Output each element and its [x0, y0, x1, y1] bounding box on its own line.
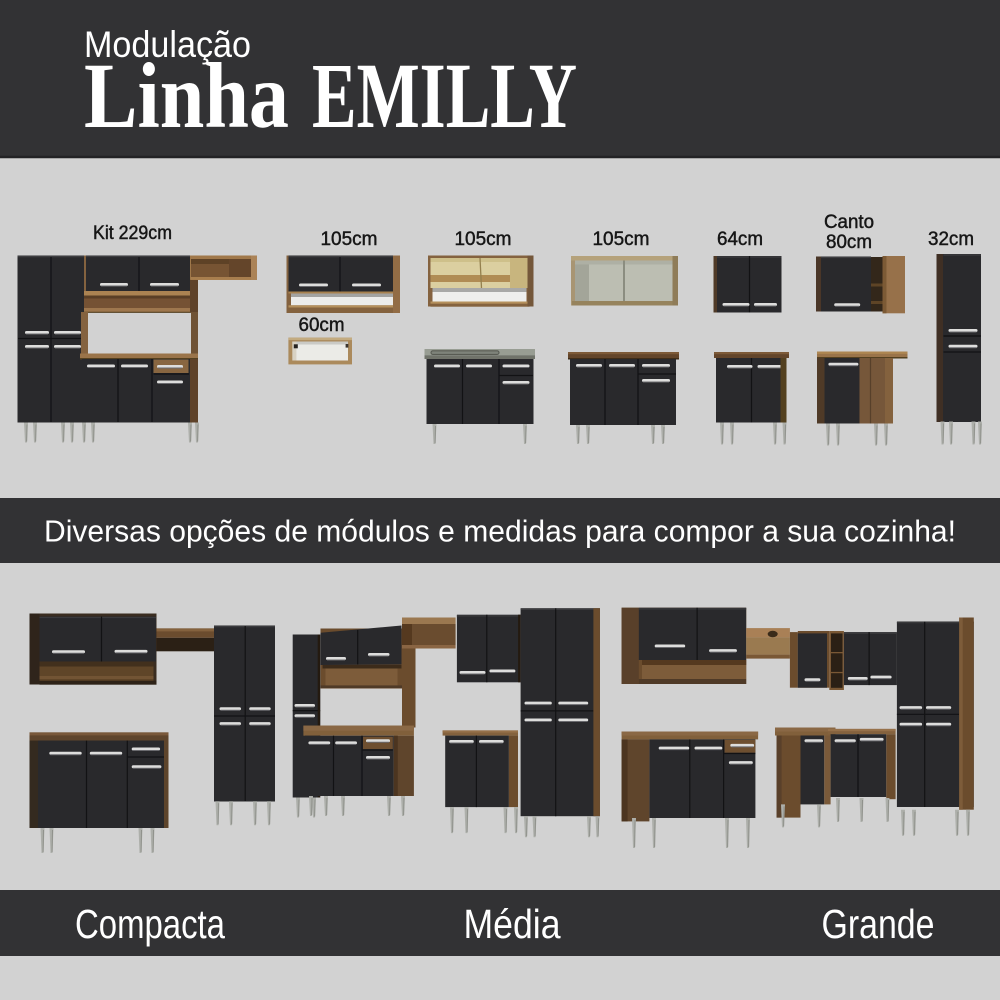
svg-text:EMILLY: EMILLY [312, 45, 577, 148]
svg-text:32cm: 32cm [928, 229, 974, 250]
svg-text:105cm: 105cm [593, 229, 650, 250]
svg-text:80cm: 80cm [826, 232, 872, 253]
svg-text:Linha: Linha [84, 45, 289, 148]
svg-text:Média: Média [464, 901, 561, 947]
svg-text:Compacta: Compacta [75, 901, 225, 947]
svg-text:Grande: Grande [822, 901, 935, 947]
svg-text:64cm: 64cm [717, 229, 763, 250]
svg-text:60cm: 60cm [299, 315, 345, 336]
svg-text:105cm: 105cm [455, 229, 512, 250]
svg-text:Canto: Canto [824, 212, 874, 233]
svg-text:105cm: 105cm [321, 229, 378, 250]
svg-text:Kit 229cm: Kit 229cm [93, 223, 172, 244]
svg-text:Diversas opções de módulos e m: Diversas opções de módulos e medidas par… [44, 514, 956, 549]
